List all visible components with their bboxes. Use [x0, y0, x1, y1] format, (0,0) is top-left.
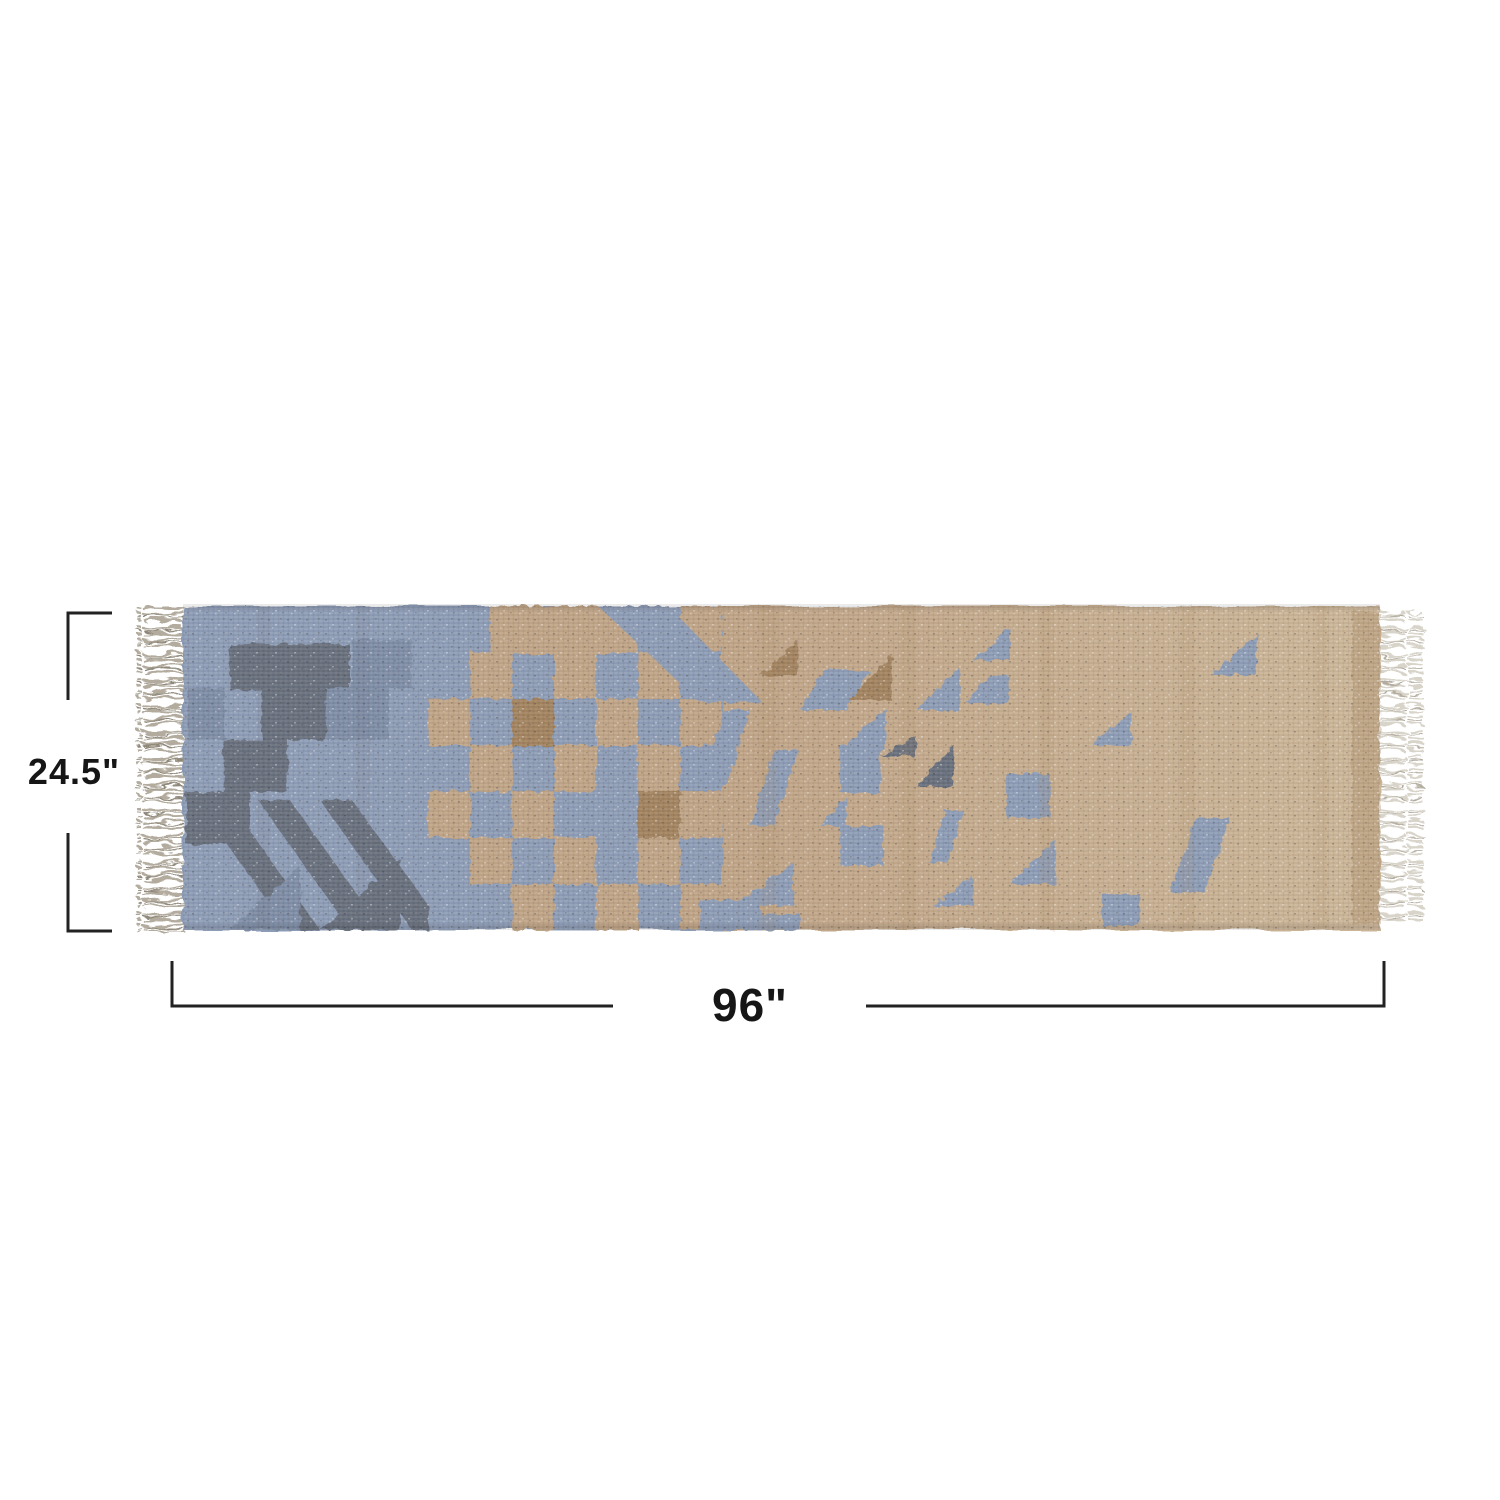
left-fringe [137, 607, 185, 932]
dimension-height: 24.5" [28, 613, 120, 931]
weave-texture-speckle [183, 606, 1380, 930]
product-dimension-diagram: 24.5" 96" [0, 0, 1500, 1500]
right-fringe [1379, 613, 1423, 923]
rug-image [183, 604, 1380, 930]
height-dimension-label: 24.5" [28, 751, 120, 792]
dimension-width: 96" [172, 961, 1384, 1031]
width-dimension-label: 96" [712, 979, 788, 1031]
selvage-bottom [183, 924, 1380, 930]
rug-dimension-illustration: 24.5" 96" [0, 0, 1500, 1500]
selvage-top [183, 604, 1380, 610]
